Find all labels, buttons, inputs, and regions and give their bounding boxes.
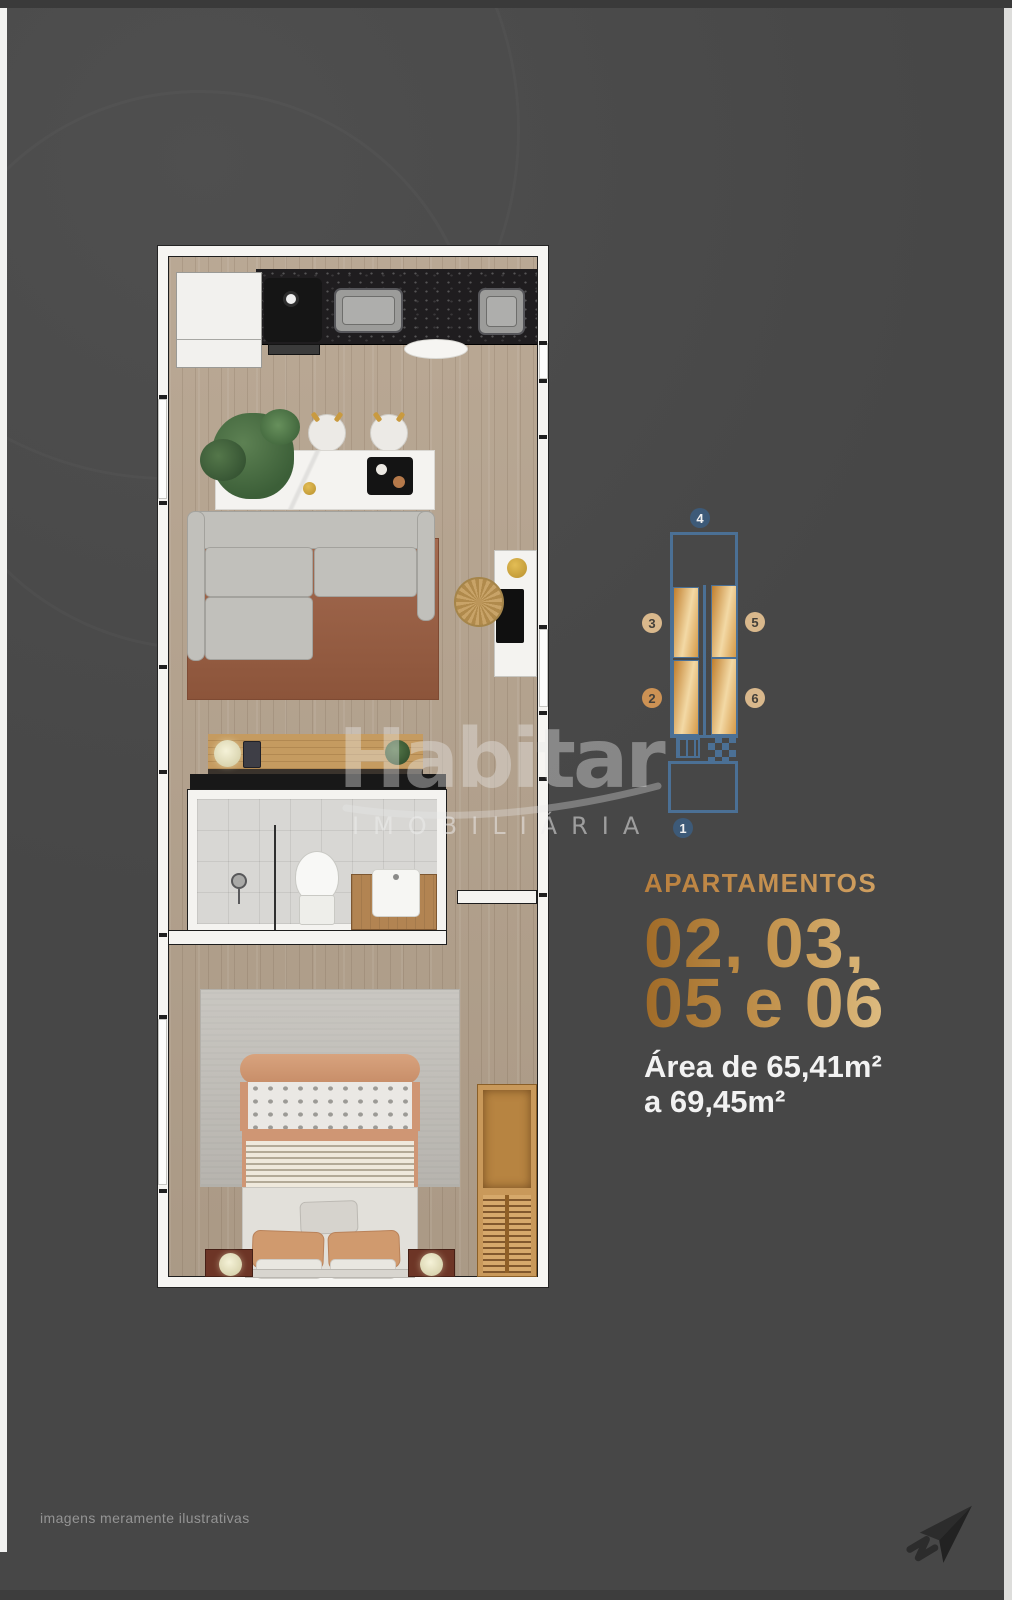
desk-decor (507, 558, 527, 578)
kitchen-stove (478, 288, 525, 335)
sideboard-lamp (214, 740, 241, 767)
screen-edge-left (0, 8, 7, 1552)
unit-3-highlight (673, 587, 699, 658)
sofa-chaise (205, 597, 313, 660)
sofa-cushion (205, 547, 313, 597)
cooktop (264, 278, 322, 342)
screen-edge-right (1004, 8, 1012, 1600)
shower-stem (238, 888, 240, 904)
shower-head (231, 873, 247, 889)
lobby-outline (668, 761, 738, 813)
wall-joint-mark (539, 625, 547, 629)
send-icon[interactable] (898, 1492, 982, 1580)
info-panel: APARTAMENTOS 02, 03, 05 e 06 Área de 65,… (644, 868, 974, 1119)
kitchen-vent (268, 344, 320, 355)
bed-striped-throw (242, 1141, 418, 1189)
bed-headboard (245, 1269, 415, 1278)
wall-joint-mark (539, 893, 547, 897)
unit-badge-5: 5 (745, 612, 765, 632)
sofa-cushion (314, 547, 417, 597)
sofa-armrest (417, 511, 435, 621)
wall-joint-mark (539, 341, 547, 345)
plant (212, 413, 294, 499)
wall-joint-mark (159, 770, 167, 774)
wall-joint-mark (539, 379, 547, 383)
kitchen-sink (334, 288, 403, 333)
window (158, 1019, 167, 1185)
bathroom-sink (372, 869, 420, 917)
area-line2: a 69,45m² (644, 1084, 974, 1119)
toilet-tank (299, 895, 335, 925)
bed-small-pillow (299, 1200, 358, 1235)
shower-glass (274, 825, 276, 933)
table-cup (303, 482, 316, 495)
unit-badge-6: 6 (745, 688, 765, 708)
unit-5-highlight (711, 585, 737, 658)
refrigerator (176, 272, 262, 368)
screen-edge-top (0, 0, 1012, 8)
wall-joint-mark (159, 395, 167, 399)
unit-badge-2: 2 (642, 688, 662, 708)
wall-joint-mark (159, 501, 167, 505)
sideboard-frame (243, 741, 261, 768)
unit-badge-1: 1 (673, 818, 693, 838)
bed-dot-blanket (240, 1082, 420, 1131)
wall-joint-mark (159, 1015, 167, 1019)
nightstand-lamp (219, 1253, 242, 1276)
sofa-back (187, 511, 435, 549)
screen-edge-bottom (0, 1590, 1004, 1600)
window (158, 399, 167, 499)
window (539, 343, 548, 379)
stairs-core (676, 738, 700, 758)
wall-joint-mark (159, 933, 167, 937)
unit-badge-3: 3 (642, 613, 662, 633)
dining-chair (370, 414, 408, 452)
elevator-core (708, 736, 736, 761)
apartments-heading: APARTAMENTOS (644, 868, 974, 899)
bed-foot-roll (240, 1054, 420, 1084)
dining-chair (308, 414, 346, 452)
hall-wall (457, 890, 537, 904)
unit-numbers-line2: 05 e 06 (644, 973, 974, 1033)
wardrobe-shelf (483, 1090, 531, 1188)
kitchen-shade (404, 339, 468, 359)
rattan-stool (454, 577, 504, 627)
wardrobe-divider (505, 1195, 509, 1273)
unit-badge-4: 4 (690, 508, 710, 528)
wall-joint-mark (159, 665, 167, 669)
area-line1: Área de 65,41m² (644, 1049, 974, 1084)
watermark-subtitle: IMOBILIÁRIA (352, 812, 653, 840)
wall-joint-mark (159, 1189, 167, 1193)
marketing-page: Habitar IMOBILIÁRIA 4 3 5 2 6 1 APARTAME… (0, 0, 1012, 1600)
unit-6-highlight (711, 658, 737, 735)
corridor-divider (703, 585, 706, 735)
bedroom-wall (168, 930, 447, 945)
sofa-armrest (187, 511, 205, 661)
unit-2-highlight (673, 660, 699, 735)
disclaimer-text: imagens meramente ilustrativas (40, 1510, 250, 1526)
wall-joint-mark (539, 435, 547, 439)
nightstand-lamp (420, 1253, 443, 1276)
table-tray (367, 457, 413, 495)
window (539, 629, 548, 707)
